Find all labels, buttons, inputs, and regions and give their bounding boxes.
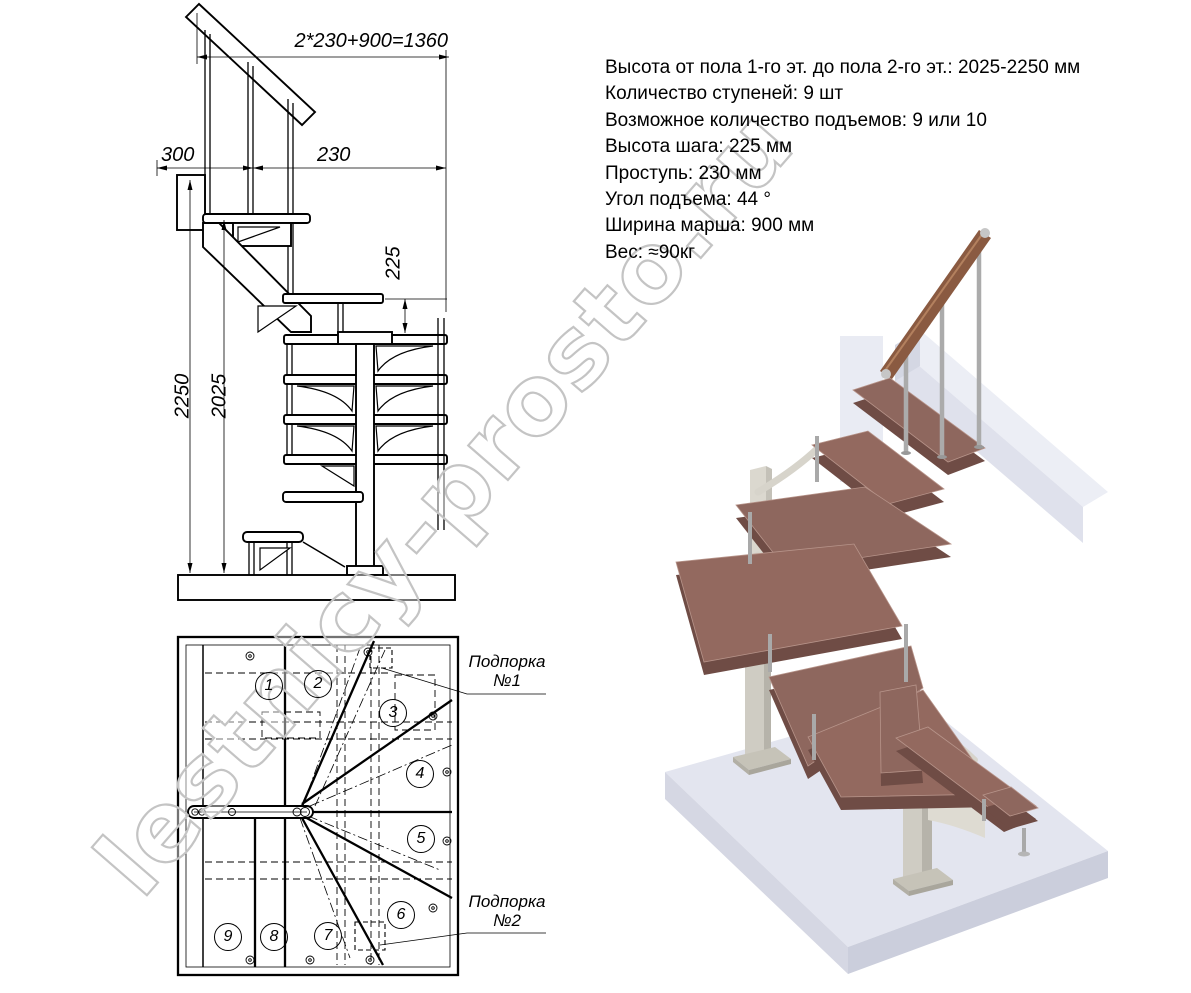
plan-step-number: 1 xyxy=(255,672,283,700)
spec-line: Ширина марша: 900 мм xyxy=(605,213,1080,239)
dim-total-width: 2*230+900=1360 xyxy=(290,30,448,53)
spec-line: Угол подъема: 44 ° xyxy=(605,187,1080,213)
plan-step-number: 4 xyxy=(406,760,434,788)
page: lestnicy-prosto.ru Высота от пола 1-го э… xyxy=(0,0,1191,993)
staircase-3d-render xyxy=(665,228,1108,974)
spec-line: Высота шага: 225 мм xyxy=(605,134,1080,160)
support-number: №2 xyxy=(464,911,550,930)
dim-300: 300 xyxy=(161,144,194,167)
plan-step-number: 9 xyxy=(214,923,242,951)
spec-line: Вес: ≈90кг xyxy=(605,240,1080,266)
spec-line: Проступь: 230 мм xyxy=(605,161,1080,187)
spec-line: Высота от пола 1-го эт. до пола 2-го эт.… xyxy=(605,55,1080,81)
spec-line: Возможное количество подъемов: 9 или 10 xyxy=(605,108,1080,134)
specifications-block: Высота от пола 1-го эт. до пола 2-го эт.… xyxy=(605,55,1080,266)
leader-support-2 xyxy=(380,933,546,945)
spec-line: Количество ступеней: 9 шт xyxy=(605,81,1080,107)
dim-225: 225 xyxy=(383,246,406,279)
plan-step-number: 7 xyxy=(314,922,342,950)
plan-step-number: 3 xyxy=(379,699,407,727)
wall-bracket xyxy=(177,175,205,230)
dim-2250: 2250 xyxy=(172,374,195,419)
plan-step-number: 2 xyxy=(304,670,332,698)
dim-2025: 2025 xyxy=(209,374,232,419)
support-number: №1 xyxy=(464,671,550,690)
plan-step-number: 6 xyxy=(387,901,415,929)
support-label: Подпорка xyxy=(464,652,550,671)
dim-230: 230 xyxy=(317,144,350,167)
support-label: Подпорка xyxy=(464,892,550,911)
support-annotation-1: Подпорка №1 xyxy=(464,652,550,690)
column-cap xyxy=(338,332,392,344)
landing-board xyxy=(203,214,310,223)
plan-step-number: 5 xyxy=(407,825,435,853)
support-annotation-2: Подпорка №2 xyxy=(464,892,550,930)
plan-step-number: 8 xyxy=(260,923,288,951)
rod-base-flange xyxy=(1018,852,1030,857)
